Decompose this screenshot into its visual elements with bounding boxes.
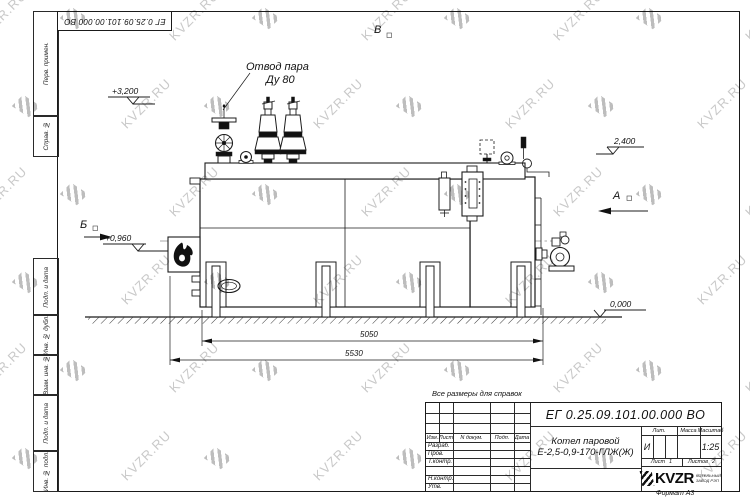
dimension-label-5530: 5530 [345, 349, 363, 358]
elevation-label-0000: 0,000 [610, 299, 631, 309]
row-razrab: Разраб. [426, 442, 470, 450]
scale-value: 1:25 [700, 435, 721, 458]
steam-outlet-leader [223, 73, 250, 110]
inspection-dashed-box [480, 140, 494, 163]
kvzr-logo-text: KVZR [655, 470, 694, 487]
view-arrow-a [598, 196, 648, 214]
sheet-cell: Лист 1 [641, 458, 682, 466]
elevation-mark-0960 [103, 244, 168, 251]
view-b-rotation-symbol [387, 33, 392, 38]
kvzr-logo-icon [640, 471, 655, 486]
company-logo: KVZR КОТЕЛЬНЫЙ ЗАВОД РЭП [641, 466, 721, 491]
col-data: Дата [514, 433, 530, 442]
view-label-v: В [374, 24, 381, 36]
ground-line [85, 317, 622, 324]
format-label: Формат А3 [656, 490, 694, 497]
elevation-mark-3200 [108, 97, 155, 104]
product-name-line2: Е-2,5-0,9-170-ГЛЖ(Ж) [537, 447, 633, 458]
sheet-label: Лист [651, 459, 665, 465]
safety-valve [280, 97, 306, 163]
elevation-label-3200: +3,200 [112, 86, 138, 96]
feed-pump [536, 232, 574, 271]
scale-header: Масштаб [700, 426, 721, 435]
handhole-eyelet [239, 152, 253, 164]
roller-fitting [499, 152, 515, 165]
row-nkontr: Н.контр. [426, 475, 470, 483]
elevation-label-2400: 2,400 [614, 136, 635, 146]
logo-caption-line2: ЗАВОД РЭП [696, 479, 721, 484]
lit-value: И [641, 435, 653, 458]
elevation-mark-2400 [596, 147, 644, 154]
boiler-body [200, 163, 535, 307]
row-tkontr: Т.контр. [426, 458, 470, 466]
col-izm: Изм. [426, 433, 439, 442]
mass-header: Масса [677, 426, 700, 435]
steam-outlet-label-line1: Отвод пара [246, 61, 309, 73]
lit-header: Лит. [641, 426, 677, 435]
sheets-value: 2 [712, 459, 715, 465]
product-name: Котел паровой Е-2,5-0,9-170-ГЛЖ(Ж) [530, 426, 641, 468]
sheets-label: Листов [688, 459, 708, 465]
sheets-cell: Листов 2 [682, 458, 721, 466]
row-utv: Утв. [426, 483, 470, 491]
steam-outlet-valve [212, 104, 236, 163]
view-label-b: Б [80, 219, 87, 231]
col-list: Лист [439, 433, 453, 442]
safety-valve [255, 97, 281, 163]
drawing-sheet: Перв. примен. Справ. № Подп. и дата Инв.… [0, 0, 750, 500]
col-ndokum: N докум. [453, 433, 490, 442]
row-prov: Пров. [426, 450, 470, 458]
water-level-gauge-small [439, 172, 450, 217]
view-label-a: А [613, 190, 620, 202]
dimension-label-5050: 5050 [360, 330, 378, 339]
sheet-value: 1 [669, 459, 672, 465]
kvzr-logo-caption: КОТЕЛЬНЫЙ ЗАВОД РЭП [696, 474, 721, 483]
elevation-mark-0000 [588, 310, 646, 317]
document-designation: ЕГ 0.25.09.101.00.000 ВО [530, 403, 721, 426]
title-block: Изм. Лист N докум. Подп. Дата Разраб. Пр… [425, 402, 722, 492]
col-podp: Подп. [490, 433, 514, 442]
row-blank [426, 466, 470, 475]
product-name-line1: Котел паровой [551, 436, 619, 447]
burner-assembly [168, 178, 200, 296]
elevation-label-0960: +0,960 [105, 233, 131, 243]
water-level-indicator [462, 166, 483, 221]
steam-outlet-label-line2: Ду 80 [266, 74, 295, 86]
reference-note: Все размеры для справок [432, 389, 522, 398]
